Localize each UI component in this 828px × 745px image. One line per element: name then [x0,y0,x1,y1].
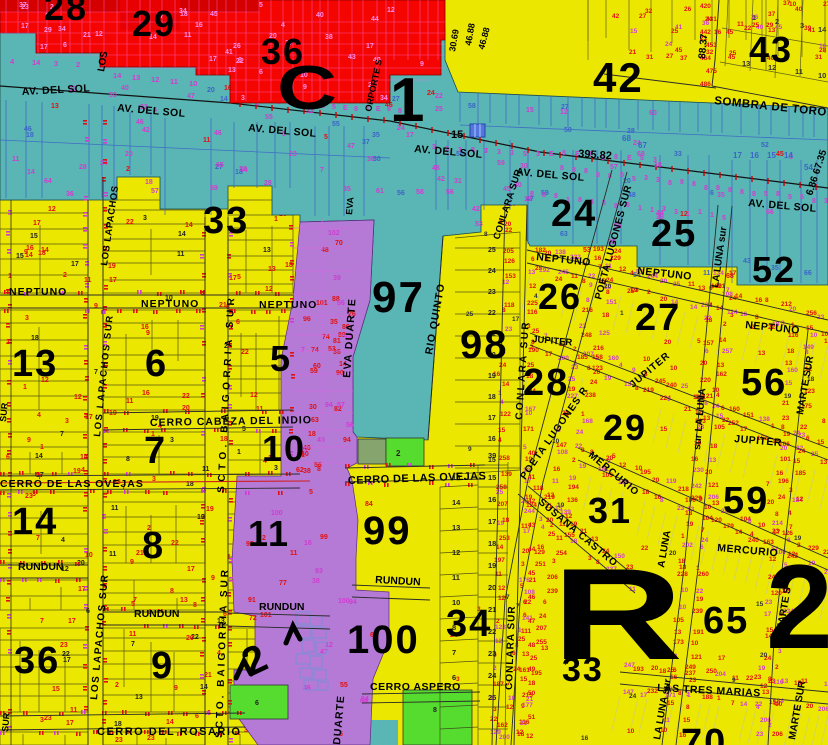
svg-text:242: 242 [691,483,702,490]
svg-text:49: 49 [528,666,536,673]
svg-text:25: 25 [729,50,737,57]
svg-text:15: 15 [52,686,60,693]
svg-text:230: 230 [693,467,704,474]
svg-text:3: 3 [510,150,514,157]
svg-text:RUNDUN: RUNDUN [18,561,64,573]
svg-text:11: 11 [202,466,210,473]
svg-text:21: 21 [529,577,537,584]
svg-text:1: 1 [698,209,702,216]
svg-text:3: 3 [65,418,69,425]
svg-text:12: 12 [48,206,56,213]
svg-text:47: 47 [187,93,195,100]
svg-text:10: 10 [627,728,635,735]
svg-text:12: 12 [387,7,395,14]
svg-text:5: 5 [632,176,636,183]
svg-text:8: 8 [542,192,546,199]
svg-text:11: 11 [177,251,185,258]
svg-text:18: 18 [488,539,496,548]
svg-text:15: 15 [660,426,668,433]
svg-text:13: 13 [820,459,828,466]
svg-text:46: 46 [136,119,144,126]
svg-text:25: 25 [518,636,526,643]
svg-text:28: 28 [523,362,569,404]
svg-text:185: 185 [795,470,806,477]
svg-text:52: 52 [761,142,769,149]
svg-text:4: 4 [61,537,65,544]
svg-text:NEPTUNO: NEPTUNO [9,286,67,298]
svg-text:187: 187 [493,681,504,688]
svg-text:11: 11 [12,156,20,163]
svg-text:97: 97 [372,273,425,322]
svg-text:8: 8 [193,602,197,609]
svg-text:NEPTUNO: NEPTUNO [259,299,317,311]
svg-text:13: 13 [263,247,271,254]
svg-text:12: 12 [529,283,537,290]
svg-text:SUR: SUR [0,712,12,732]
svg-text:16: 16 [594,255,602,262]
svg-text:14: 14 [185,222,193,229]
svg-text:17: 17 [21,23,29,30]
svg-text:139: 139 [501,471,512,478]
svg-text:6: 6 [6,454,10,461]
svg-text:7: 7 [320,167,324,174]
svg-text:65: 65 [216,162,224,169]
svg-text:1: 1 [581,411,585,418]
svg-text:11: 11 [126,398,134,405]
svg-text:57: 57 [151,188,159,195]
svg-text:24: 24 [488,268,496,275]
svg-text:202: 202 [682,542,693,549]
svg-text:18: 18 [180,11,188,18]
svg-text:28: 28 [264,180,272,187]
svg-text:36: 36 [333,349,341,356]
svg-text:6: 6 [236,319,240,326]
svg-text:63: 63 [311,417,319,424]
svg-text:51: 51 [528,714,536,721]
svg-text:24: 24 [488,671,497,680]
svg-text:18: 18 [31,335,39,342]
svg-text:26: 26 [538,276,582,317]
svg-text:39: 39 [488,451,496,460]
svg-text:9: 9 [174,685,178,692]
svg-text:30: 30 [373,156,381,163]
svg-text:59: 59 [210,185,218,192]
svg-text:22: 22 [488,310,496,317]
svg-text:47: 47 [528,618,536,625]
svg-text:94: 94 [325,402,333,409]
svg-text:8: 8 [596,172,600,179]
svg-text:23: 23 [782,415,790,422]
svg-text:14: 14 [166,719,174,726]
svg-text:10: 10 [691,640,699,647]
svg-text:56: 56 [397,190,405,197]
svg-text:45: 45 [675,47,683,54]
svg-text:25: 25 [681,383,689,390]
svg-text:225: 225 [527,300,538,307]
svg-text:151: 151 [606,299,617,306]
svg-text:20: 20 [207,87,215,94]
svg-text:13: 13 [717,362,725,369]
svg-text:168: 168 [582,418,593,425]
svg-text:34: 34 [446,603,492,645]
svg-text:45: 45 [726,29,734,36]
svg-text:20: 20 [186,635,194,642]
svg-text:46: 46 [24,126,32,133]
svg-text:56: 56 [446,189,454,196]
svg-text:4: 4 [37,412,41,419]
svg-text:2: 2 [647,289,651,296]
svg-text:8: 8 [433,707,437,714]
svg-text:16: 16 [26,245,34,252]
svg-text:22: 22 [696,588,704,595]
svg-text:8: 8 [775,511,779,518]
svg-text:8: 8 [704,185,708,192]
svg-text:14: 14 [818,25,827,34]
svg-text:8: 8 [765,297,769,304]
svg-text:9: 9 [27,437,31,444]
svg-text:12: 12 [506,704,514,711]
svg-text:37: 37 [19,2,27,9]
svg-text:17: 17 [209,56,217,63]
svg-text:244: 244 [524,508,535,515]
svg-text:18: 18 [26,132,34,139]
svg-text:16: 16 [581,735,589,742]
svg-text:3: 3 [539,516,543,523]
svg-text:206: 206 [818,706,828,713]
svg-text:20: 20 [488,583,496,592]
svg-text:17: 17 [109,277,117,284]
svg-text:249: 249 [685,664,696,671]
svg-text:19: 19 [758,665,766,672]
svg-text:27: 27 [823,1,828,8]
svg-text:68: 68 [726,273,734,280]
svg-text:6: 6 [531,256,535,263]
svg-text:72: 72 [249,615,257,622]
svg-text:44: 44 [528,546,536,553]
svg-text:38: 38 [312,578,320,585]
svg-text:4: 4 [541,524,545,531]
svg-text:17: 17 [488,415,496,422]
svg-text:10: 10 [643,356,651,363]
svg-text:13: 13 [758,350,766,357]
svg-text:13: 13 [452,523,460,532]
svg-text:53: 53 [475,221,483,228]
svg-text:77: 77 [279,580,287,587]
svg-text:11: 11 [109,551,117,558]
svg-text:7: 7 [94,369,98,376]
svg-text:42: 42 [142,127,150,134]
svg-text:33: 33 [674,151,682,158]
svg-text:16: 16 [195,22,203,29]
svg-text:37: 37 [680,55,688,62]
svg-text:65: 65 [703,600,749,642]
svg-text:2: 2 [63,272,67,279]
svg-text:38: 38 [325,34,333,41]
svg-text:116: 116 [773,679,784,686]
svg-text:22: 22 [171,540,179,547]
svg-text:13: 13 [762,689,770,696]
svg-text:8: 8 [740,189,744,196]
svg-text:20: 20 [125,151,133,158]
svg-text:1: 1 [390,66,424,135]
svg-text:43: 43 [348,54,356,61]
svg-text:25: 25 [435,106,443,113]
svg-text:4: 4 [756,704,760,711]
svg-text:100: 100 [338,598,350,605]
svg-text:25: 25 [488,693,496,702]
svg-text:28: 28 [44,0,88,28]
svg-text:99: 99 [320,534,328,541]
svg-text:8: 8 [530,191,534,198]
svg-text:23: 23 [754,674,762,681]
svg-text:136: 136 [567,497,578,504]
svg-text:17: 17 [773,529,781,536]
svg-text:5: 5 [697,338,701,345]
svg-text:206: 206 [708,494,719,501]
svg-text:193: 193 [593,246,604,253]
svg-text:240: 240 [748,537,759,544]
svg-text:RUNDUN: RUNDUN [375,574,421,588]
svg-text:162: 162 [497,722,508,729]
svg-text:47: 47 [320,649,328,656]
svg-text:7: 7 [301,347,305,354]
svg-text:13: 13 [522,651,530,658]
svg-text:12: 12 [796,496,804,503]
svg-text:31: 31 [588,490,632,531]
svg-text:10: 10 [670,365,678,372]
svg-text:13: 13 [51,103,59,110]
svg-text:39: 39 [333,275,341,282]
svg-text:10: 10 [525,410,533,417]
svg-text:126: 126 [504,258,515,265]
svg-text:43: 43 [749,29,793,70]
svg-text:18: 18 [488,394,496,401]
svg-text:18: 18 [705,317,713,324]
svg-text:22: 22 [62,651,70,658]
svg-text:25: 25 [530,655,538,662]
svg-text:251: 251 [535,561,546,568]
svg-text:26: 26 [751,14,759,21]
svg-text:E: E [627,155,632,162]
svg-text:15: 15 [488,473,496,482]
svg-text:11: 11 [129,631,137,638]
svg-text:6: 6 [63,42,67,49]
svg-text:24: 24 [701,537,709,544]
svg-text:60: 60 [649,110,657,117]
svg-text:50: 50 [109,92,117,99]
svg-text:CERRO ASPERO: CERRO ASPERO [370,681,461,693]
svg-text:6: 6 [238,57,242,64]
svg-text:12: 12 [560,109,568,116]
svg-text:61: 61 [376,188,384,195]
svg-text:100: 100 [347,618,420,662]
svg-text:3: 3 [824,198,828,205]
svg-text:29: 29 [44,27,52,34]
svg-text:7: 7 [726,287,730,294]
svg-text:2: 2 [766,540,828,674]
svg-text:7: 7 [731,700,735,707]
svg-text:58: 58 [416,189,424,196]
svg-text:16: 16 [488,436,496,443]
svg-text:7: 7 [144,430,167,472]
svg-text:160: 160 [608,355,619,362]
svg-text:E: E [376,106,381,113]
svg-text:36: 36 [702,20,710,27]
svg-text:45: 45 [776,151,784,158]
svg-text:23: 23 [289,151,297,158]
svg-text:24: 24 [539,613,547,620]
svg-text:45: 45 [210,11,218,18]
svg-text:16: 16 [488,495,496,504]
svg-text:8: 8 [170,588,174,595]
svg-text:43: 43 [743,258,751,265]
svg-text:CERRO DEL ROSARIO: CERRO DEL ROSARIO [97,726,241,738]
svg-text:8: 8 [716,185,720,192]
svg-text:93: 93 [315,568,323,575]
svg-text:3: 3 [521,561,525,568]
svg-text:91: 91 [248,597,256,604]
svg-text:25: 25 [466,311,474,318]
svg-text:18: 18 [710,443,718,450]
svg-text:19: 19 [579,463,587,470]
svg-text:12: 12 [526,733,534,740]
svg-text:16: 16 [776,470,784,477]
svg-text:1: 1 [274,216,278,223]
svg-text:205: 205 [503,248,514,255]
svg-text:257: 257 [722,348,733,355]
svg-text:118: 118 [504,302,515,309]
svg-text:125: 125 [599,330,610,337]
svg-text:24: 24 [590,379,598,386]
svg-text:18: 18 [308,431,316,438]
svg-text:5: 5 [523,151,527,158]
svg-text:11: 11 [184,32,192,39]
svg-text:121: 121 [691,654,702,661]
svg-text:25: 25 [752,22,760,29]
svg-text:24: 24 [551,193,597,235]
svg-text:E: E [549,151,554,158]
svg-text:50: 50 [564,127,572,134]
svg-text:2: 2 [76,60,80,69]
svg-text:64: 64 [44,178,52,185]
svg-text:96: 96 [303,316,311,323]
svg-text:13: 13 [268,266,276,273]
svg-text:14: 14 [740,701,748,708]
svg-text:20: 20 [705,469,713,476]
svg-text:RUNDUN: RUNDUN [259,601,305,613]
svg-text:16: 16 [714,29,722,36]
svg-text:25: 25 [488,247,496,254]
svg-text:12: 12 [452,548,460,557]
svg-text:13: 13 [712,500,720,507]
svg-text:14: 14 [41,247,49,254]
svg-text:13: 13 [541,645,549,652]
svg-text:1: 1 [40,444,44,451]
svg-text:19: 19 [773,700,781,707]
svg-text:22: 22 [575,443,583,450]
svg-text:1: 1 [23,384,27,391]
svg-text:3: 3 [536,151,540,158]
svg-text:17: 17 [66,720,74,727]
svg-text:24: 24 [629,693,637,700]
svg-text:NEPTUNO: NEPTUNO [141,298,199,310]
svg-text:EVA: EVA [344,196,356,215]
svg-text:5: 5 [640,155,644,162]
svg-text:101: 101 [780,456,791,463]
svg-text:43: 43 [528,522,536,529]
svg-text:14: 14 [178,231,186,238]
svg-text:14: 14 [200,684,208,691]
svg-text:11: 11 [203,137,211,144]
svg-text:14: 14 [27,169,35,176]
svg-text:1: 1 [638,205,642,212]
svg-text:5: 5 [722,215,726,222]
svg-text:14: 14 [25,252,33,259]
svg-text:12: 12 [265,286,273,293]
svg-text:19: 19 [109,410,117,417]
svg-text:31: 31 [454,178,462,185]
svg-text:126: 126 [782,530,793,537]
svg-text:14: 14 [502,381,510,388]
svg-text:119: 119 [666,478,677,485]
svg-text:11: 11 [552,478,559,485]
svg-text:CERRO DE LAS OVEJAS: CERRO DE LAS OVEJAS [0,478,144,490]
svg-text:38: 38 [239,166,247,173]
svg-text:20: 20 [806,703,814,710]
svg-text:98: 98 [460,323,509,367]
svg-text:18: 18 [787,348,795,355]
svg-text:13: 13 [528,269,536,276]
svg-text:121: 121 [708,482,719,489]
svg-text:21: 21 [520,720,528,727]
svg-text:7: 7 [40,618,44,625]
svg-text:27: 27 [635,297,681,339]
svg-text:17: 17 [187,566,195,573]
svg-text:8: 8 [126,456,130,463]
svg-text:46: 46 [214,130,222,137]
svg-text:14: 14 [32,58,41,67]
svg-text:24: 24 [778,494,786,501]
svg-text:40: 40 [316,12,324,19]
svg-text:395.82: 395.82 [578,148,612,162]
svg-text:41: 41 [808,27,816,34]
svg-text:36: 36 [14,640,60,682]
svg-text:5: 5 [237,274,241,281]
svg-text:105: 105 [714,424,725,431]
svg-text:22: 22 [241,349,249,356]
svg-text:66: 66 [804,270,812,277]
svg-text:11: 11 [703,270,711,277]
svg-text:1: 1 [620,310,624,317]
svg-text:70: 70 [681,722,727,745]
svg-text:116: 116 [527,309,538,316]
svg-text:9: 9 [151,645,174,687]
svg-text:195: 195 [640,469,651,476]
svg-text:10: 10 [189,79,197,88]
svg-text:55: 55 [265,114,273,121]
svg-text:50: 50 [528,690,536,697]
svg-text:2: 2 [115,682,119,689]
svg-text:8: 8 [668,180,672,187]
svg-text:18: 18 [145,179,153,186]
svg-text:6: 6 [255,700,259,707]
svg-text:94: 94 [343,437,351,444]
svg-text:3: 3 [653,157,657,164]
svg-text:17: 17 [68,618,76,625]
svg-text:10: 10 [810,332,818,339]
svg-text:8: 8 [142,525,165,567]
svg-text:11: 11 [290,550,298,557]
